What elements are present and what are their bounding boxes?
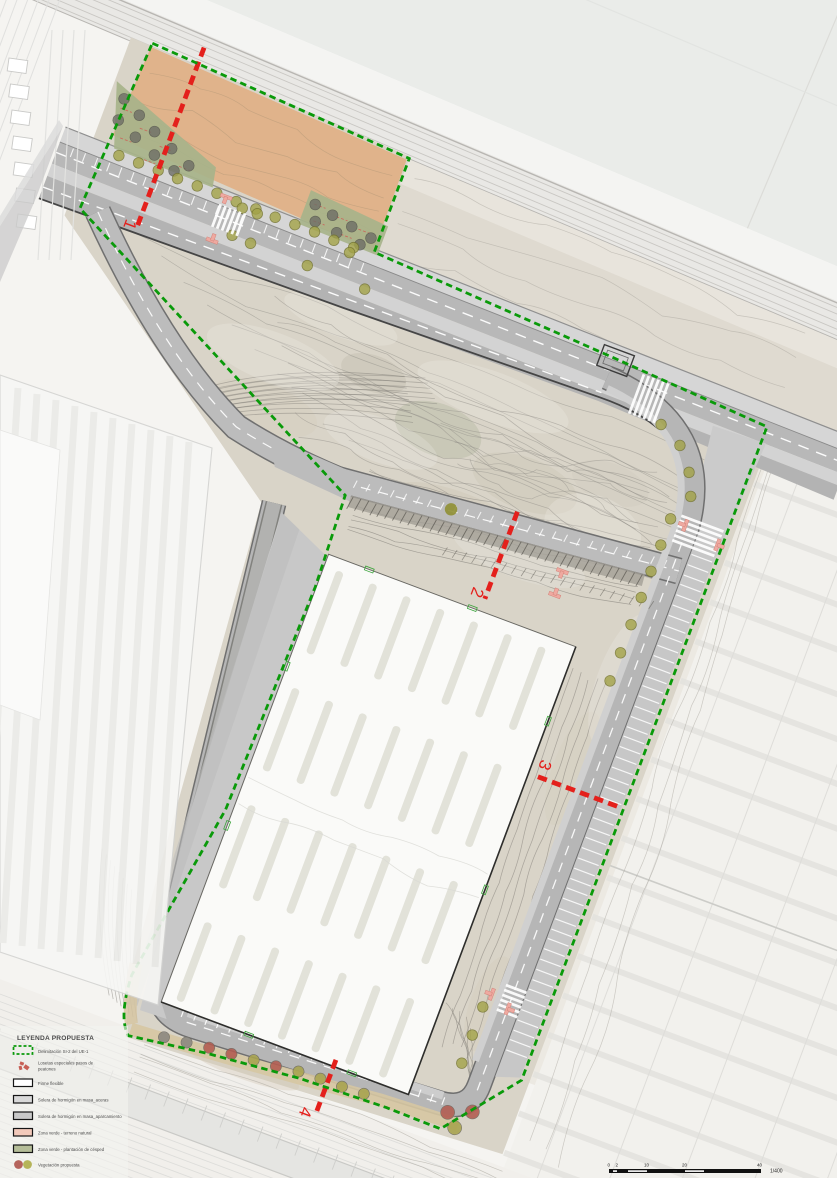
svg-text:20: 20 [682,1163,688,1168]
svg-text:40: 40 [757,1163,763,1168]
svg-text:peatones: peatones [38,1067,56,1072]
svg-text:LEYENDA PROPUESTA: LEYENDA PROPUESTA [17,1035,94,1042]
svg-text:Solera de hormigón en masa_apa: Solera de hormigón en masa_aparcamiento [38,1114,122,1119]
svg-text:Vegetación propuesta: Vegetación propuesta [38,1163,80,1168]
svg-text:Zona verde - plantación de cés: Zona verde - plantación de césped [38,1147,105,1152]
svg-text:Delimitación SI-2 del UE-1: Delimitación SI-2 del UE-1 [38,1049,89,1054]
svg-text:10: 10 [644,1163,650,1168]
svg-text:Solera de hormigón en masa_ace: Solera de hormigón en masa_aceras [38,1097,108,1102]
svg-text:Losetas especiales pasos de: Losetas especiales pasos de [38,1061,94,1066]
svg-text:1/400: 1/400 [770,1169,783,1175]
svg-text:Zona verde - terreno natural: Zona verde - terreno natural [38,1130,92,1135]
svg-text:Firme flexible: Firme flexible [38,1081,64,1086]
